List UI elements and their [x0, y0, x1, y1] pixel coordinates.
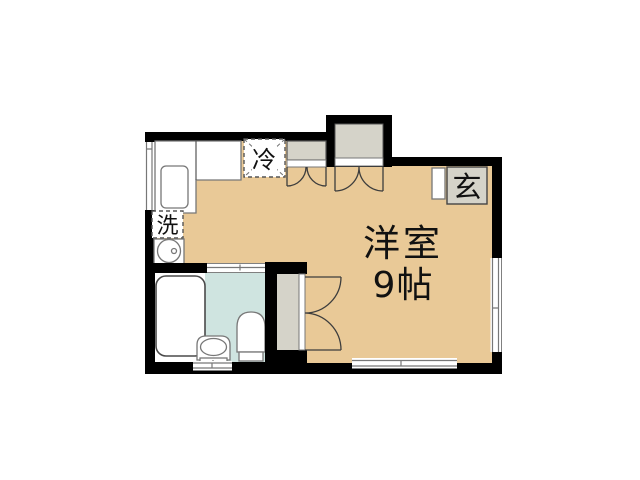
floor-plan-drawing: 冷 洗 — [0, 0, 640, 480]
refrigerator-space: 冷 — [244, 139, 285, 177]
washer-label: 洗 — [156, 214, 178, 239]
top-wall-left — [145, 132, 331, 141]
bathroom — [145, 263, 277, 374]
washer-space: 洗 — [152, 211, 184, 264]
entrance-genkan: 玄 — [432, 167, 487, 204]
toilet — [237, 312, 265, 361]
kitchen-sink — [161, 166, 188, 208]
top-wall-right — [383, 157, 502, 166]
kitchen-window — [144, 142, 155, 210]
floor-plan: 冷 洗 — [0, 0, 640, 480]
refrigerator-label: 冷 — [252, 146, 276, 174]
right-window — [491, 258, 502, 352]
entrance-label: 玄 — [452, 170, 481, 204]
entrance-step — [432, 168, 445, 199]
bathroom-sliding-door — [207, 264, 267, 273]
room-label: 洋室 — [363, 222, 443, 265]
bathroom-window — [193, 361, 232, 371]
room-size-label: 9帖 — [373, 265, 434, 306]
bottom-window — [352, 358, 457, 369]
